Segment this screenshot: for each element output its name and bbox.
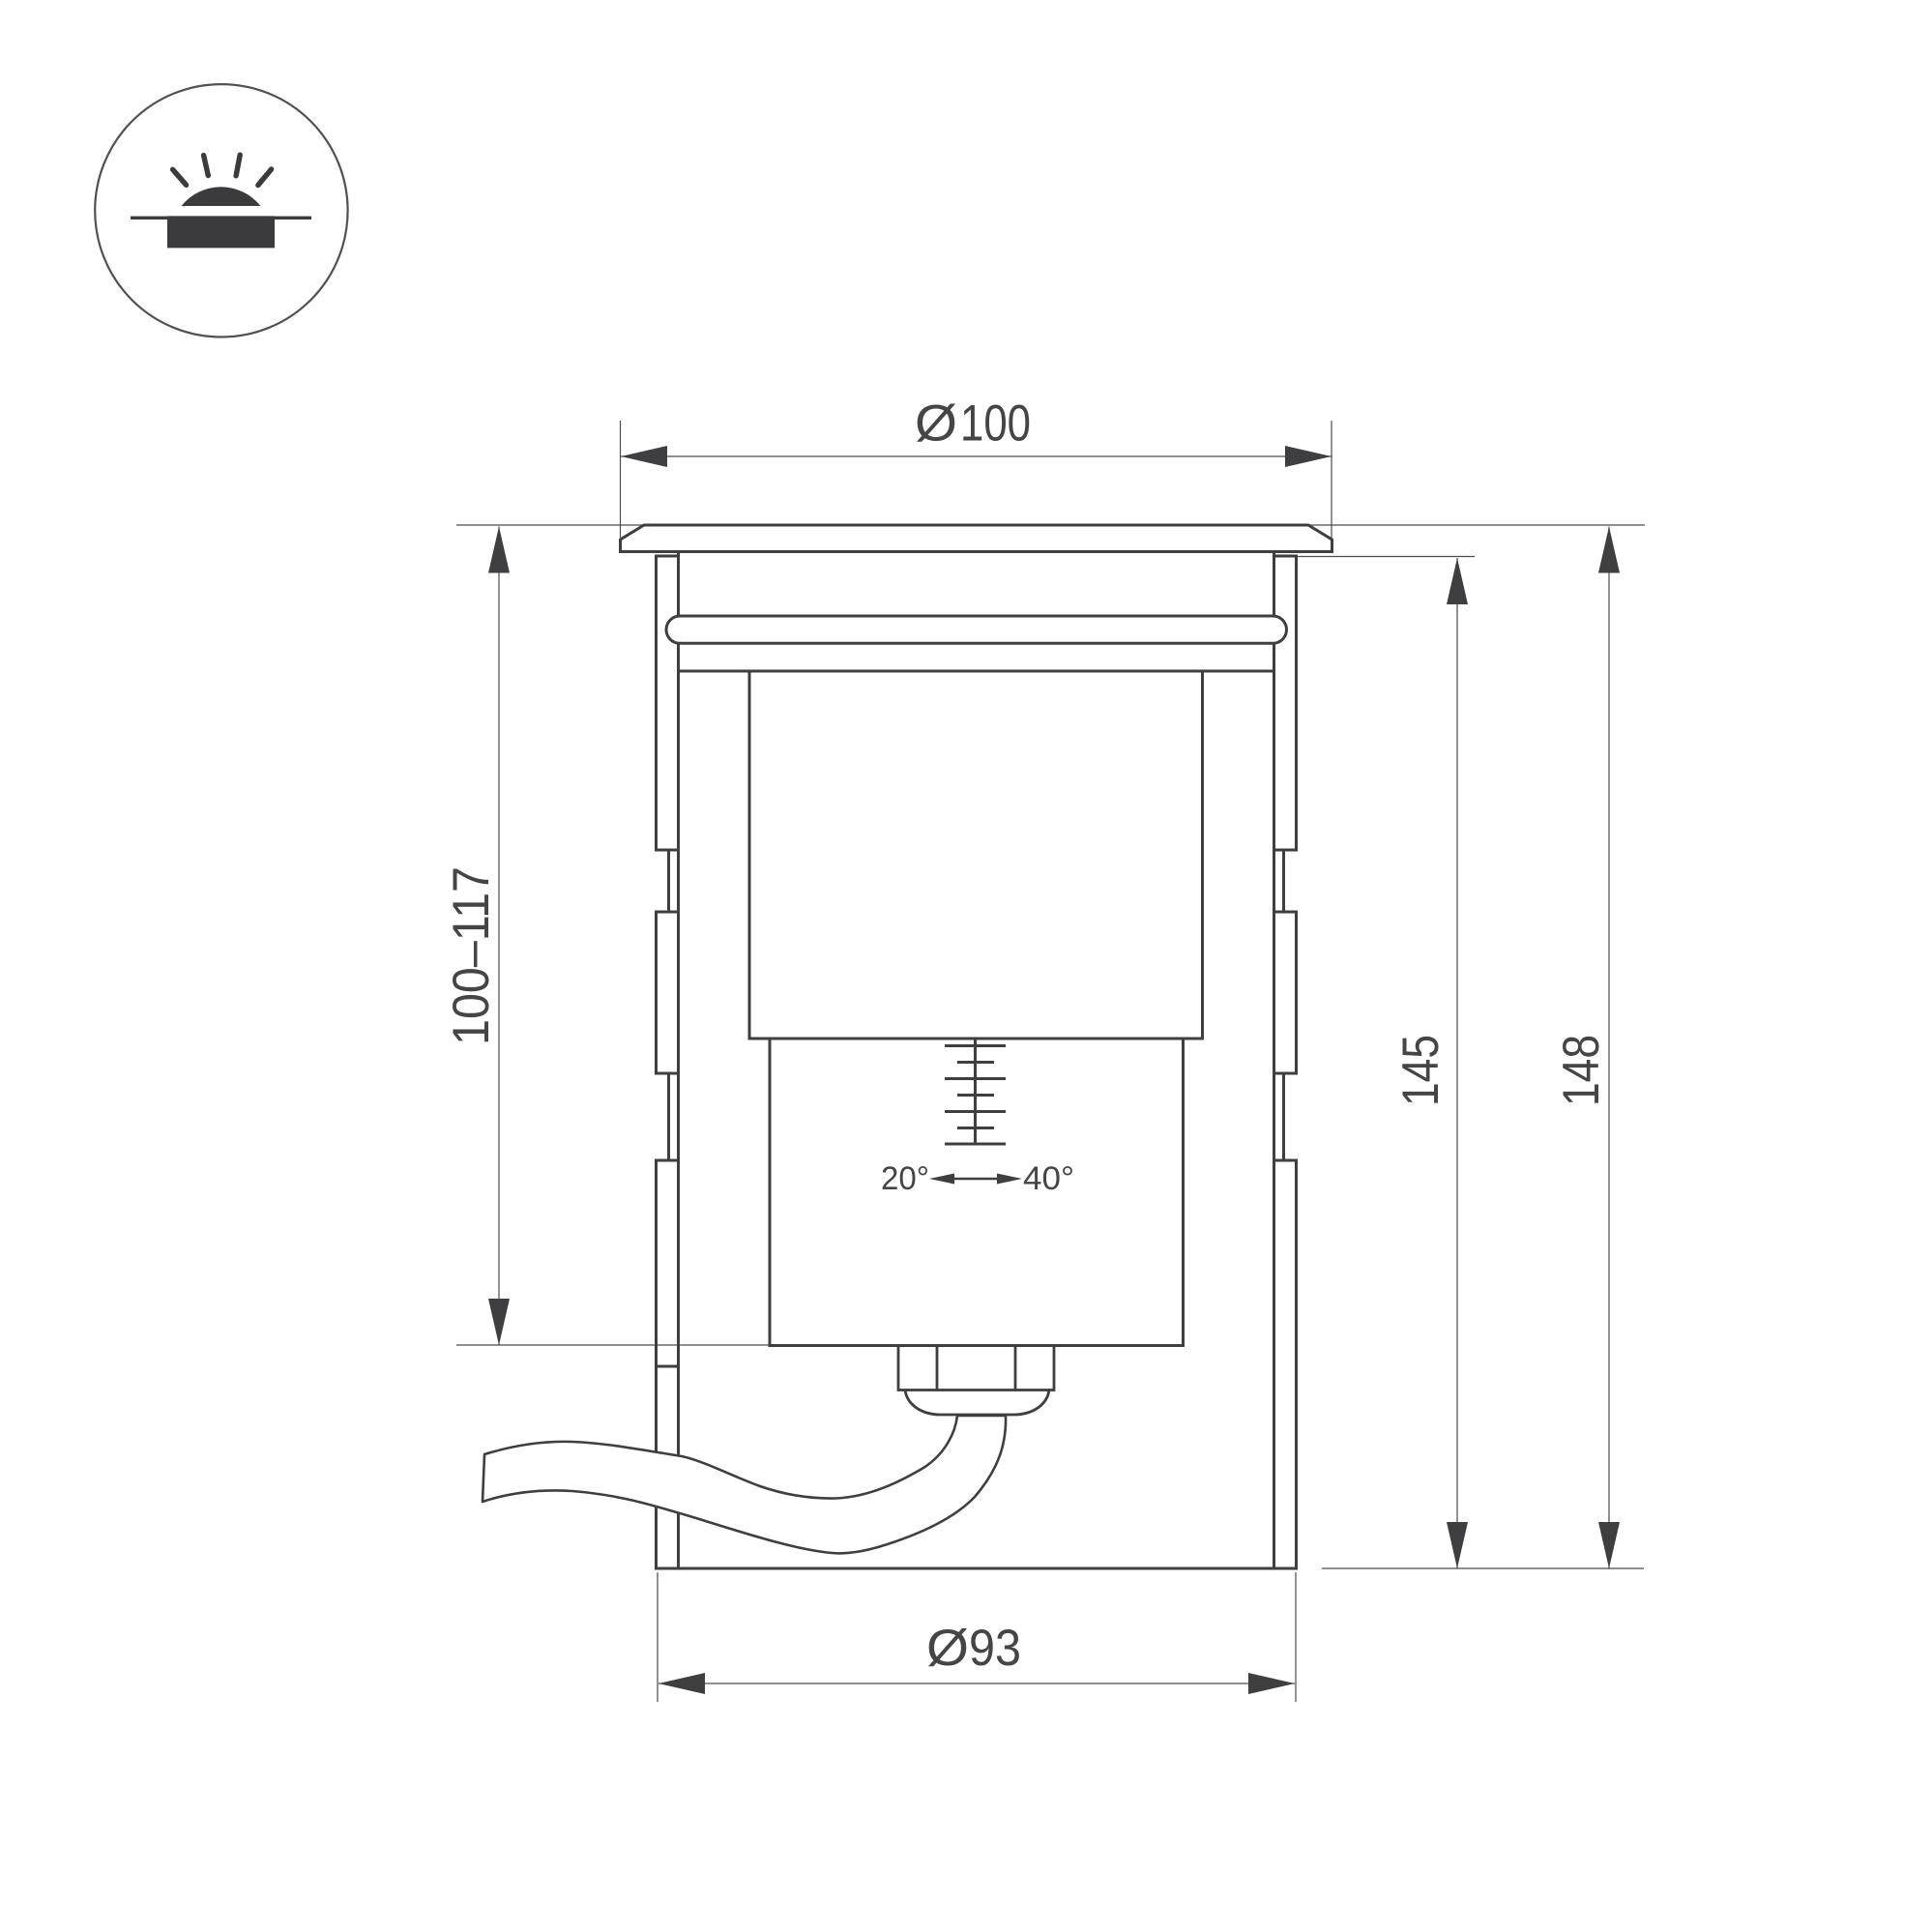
svg-text:Ø: Ø	[926, 1620, 969, 1677]
svg-text:100: 100	[960, 395, 1031, 453]
svg-text:40°: 40°	[1023, 1160, 1074, 1197]
svg-text:Ø: Ø	[915, 395, 957, 453]
svg-text:148: 148	[1553, 1035, 1610, 1106]
svg-text:100–117: 100–117	[443, 866, 500, 1045]
svg-text:145: 145	[1392, 1035, 1449, 1106]
svg-text:93: 93	[969, 1620, 1021, 1677]
svg-text:20°: 20°	[881, 1160, 929, 1197]
